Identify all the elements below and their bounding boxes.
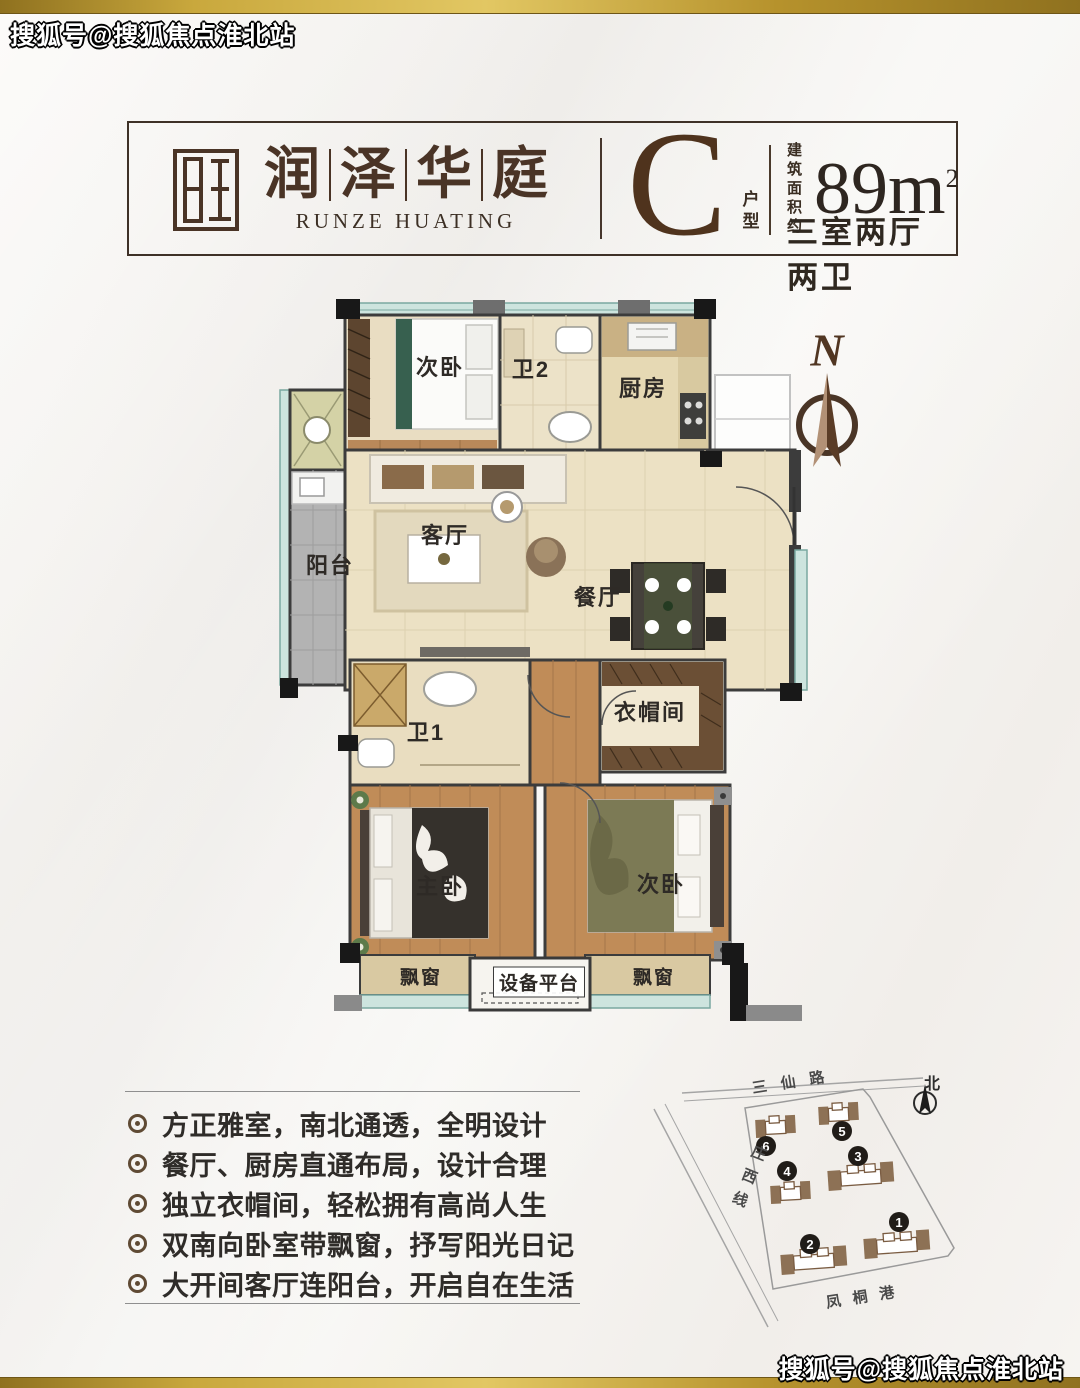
gold-bar-top xyxy=(0,0,1080,14)
bullet-icon xyxy=(128,1154,147,1173)
room-label-bath1: 卫1 xyxy=(407,715,445,747)
building-number-badge: 1 xyxy=(889,1212,909,1232)
brand-divider xyxy=(329,149,331,201)
building-number-badge: 5 xyxy=(832,1121,852,1141)
building-icon xyxy=(755,1115,796,1138)
brand-char: 泽 xyxy=(340,145,396,205)
header-divider xyxy=(600,138,602,239)
brand-char: 润 xyxy=(264,145,320,205)
room-label-bay-left: 飘窗 xyxy=(400,963,442,990)
rooms-summary: 三室两厅两卫 xyxy=(787,207,956,297)
feature-text: 方正雅室，南北通透，全明设计 xyxy=(162,1104,547,1143)
room-label-bedroom-bottom: 次卧 xyxy=(637,867,685,899)
feature-item: 餐厅、厨房直通布局，设计合理 xyxy=(128,1143,598,1183)
svg-text:4: 4 xyxy=(783,1164,791,1179)
feature-item: 独立衣帽间，轻松拥有高尚人生 xyxy=(128,1183,598,1223)
room-label-bedroom-top: 次卧 xyxy=(416,350,464,382)
room-label-cloakroom: 衣帽间 xyxy=(614,695,686,727)
feature-item: 大开间客厅连阳台，开启自在生活 xyxy=(128,1263,598,1303)
room-label-balcony: 阳台 xyxy=(306,548,354,580)
room-label-kitchen: 厨房 xyxy=(619,371,667,403)
compass-n-label: N xyxy=(810,324,843,377)
building-number-badge: 4 xyxy=(777,1161,797,1181)
room-label-bay-right: 飘窗 xyxy=(633,963,675,990)
bullet-icon xyxy=(128,1234,147,1253)
watermark-top-left: 搜狐号@搜狐焦点淮北站 xyxy=(10,16,295,52)
area-superscript: 2 xyxy=(946,164,959,193)
room-label-bath2: 卫2 xyxy=(512,352,550,384)
building-number-badge: 2 xyxy=(800,1234,820,1254)
brand-char: 庭 xyxy=(492,145,548,205)
unit-type-label: 户型 xyxy=(741,189,761,233)
features-list: 方正雅室，南北通透，全明设计 餐厅、厨房直通布局，设计合理 独立衣帽间，轻松拥有… xyxy=(128,1103,598,1303)
brand-block: 润 泽 华 庭 RUNZE HUATING xyxy=(247,145,565,234)
brand-char: 华 xyxy=(416,145,472,205)
svg-text:1: 1 xyxy=(895,1215,902,1230)
siteplan-north-label: 北 xyxy=(924,1070,940,1094)
svg-text:2: 2 xyxy=(806,1237,813,1252)
room-label-equipment: 设备平台 xyxy=(493,967,585,998)
unit-rule xyxy=(769,145,771,235)
svg-text:5: 5 xyxy=(838,1124,845,1139)
building-icon xyxy=(818,1102,859,1125)
brand-name-en: RUNZE HUATING xyxy=(247,209,565,234)
brand-logo-icon xyxy=(173,149,239,231)
brand-divider xyxy=(405,149,407,201)
building-icon xyxy=(863,1229,931,1259)
watermark-bottom-right: 搜狐号@搜狐焦点淮北站 xyxy=(779,1350,1064,1386)
area-prefix-line1: 建 筑 xyxy=(787,141,802,179)
floorplan-svg xyxy=(270,295,870,1065)
compass-icon xyxy=(799,373,855,467)
room-label-master: 主卧 xyxy=(416,869,464,901)
svg-text:3: 3 xyxy=(854,1149,861,1164)
building-icon xyxy=(827,1161,895,1191)
feature-item: 双南向卧室带飘窗，抒写阳光日记 xyxy=(128,1223,598,1263)
brand-divider xyxy=(481,149,483,201)
feature-item: 方正雅室，南北通透，全明设计 xyxy=(128,1103,598,1143)
header-box: 润 泽 华 庭 RUNZE HUATING C 户型 建 筑 面积约 89m2 … xyxy=(127,121,958,256)
bullet-icon xyxy=(128,1274,147,1293)
unit-letter: C xyxy=(627,109,727,259)
brand-name: 润 泽 华 庭 xyxy=(247,145,565,205)
feature-text: 双南向卧室带飘窗，抒写阳光日记 xyxy=(162,1224,575,1263)
bullet-icon xyxy=(128,1114,147,1133)
feature-text: 餐厅、厨房直通布局，设计合理 xyxy=(162,1144,547,1183)
feature-text: 大开间客厅连阳台，开启自在生活 xyxy=(162,1264,575,1303)
bullet-icon xyxy=(128,1194,147,1213)
features-rule-top xyxy=(125,1091,580,1092)
room-label-dining: 餐厅 xyxy=(574,580,622,612)
building-number-badge: 3 xyxy=(848,1146,868,1166)
building-icon xyxy=(770,1181,811,1204)
feature-text: 独立衣帽间，轻松拥有高尚人生 xyxy=(162,1184,547,1223)
flyer-page: 搜狐号@搜狐焦点淮北站 搜狐号@搜狐焦点淮北站 润 泽 华 庭 RUNZE HU… xyxy=(0,0,1080,1388)
features-rule-bottom xyxy=(125,1303,580,1304)
room-label-living: 客厅 xyxy=(421,518,469,550)
